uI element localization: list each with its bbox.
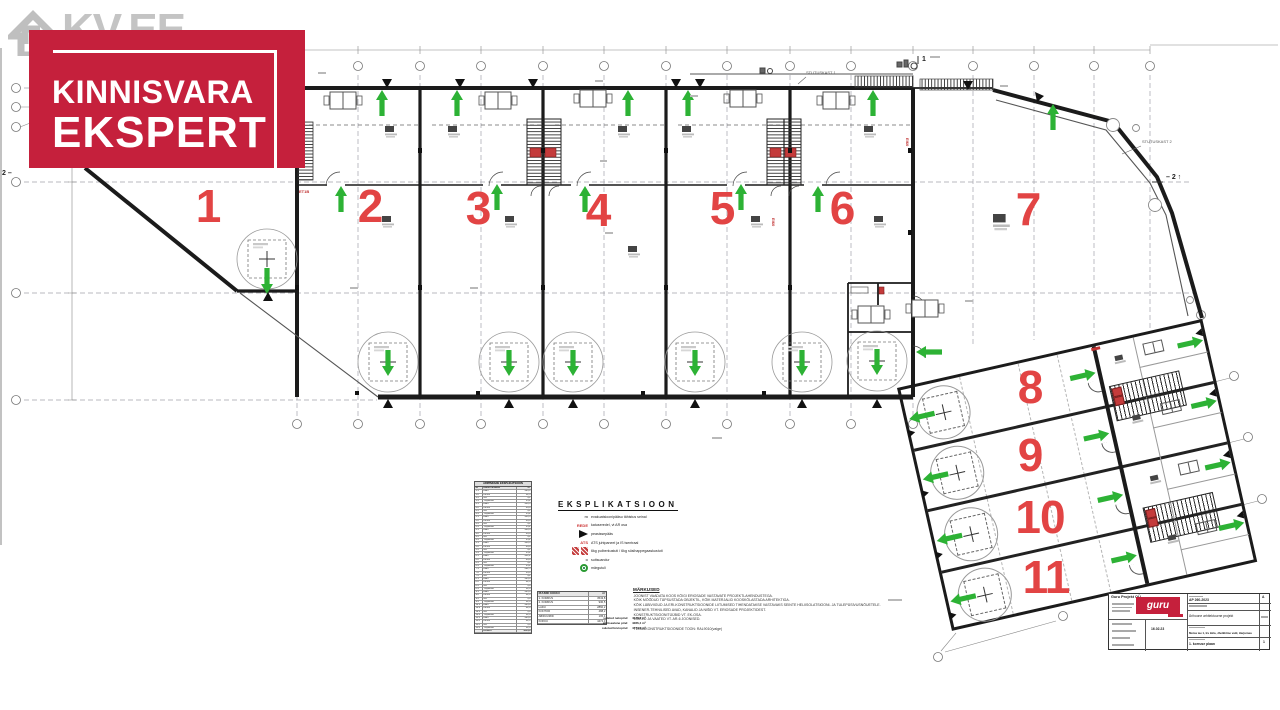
section-marker-left: 2 –: [2, 170, 12, 177]
work-number: AP 260-2023: [1189, 598, 1209, 602]
logo-line-1: KINNISVARA: [52, 74, 254, 111]
fire-rating-label: EI60: [771, 218, 776, 226]
legend: EKSPLIKATSIOON mevakuatsioonipääsu tähis…: [558, 494, 688, 572]
unit-number-10: 10: [1008, 494, 1072, 540]
unit-number-9: 9: [998, 432, 1062, 478]
page-number: 1: [1263, 640, 1265, 644]
legend-item: peasissepääs: [558, 530, 688, 538]
sheet-title: 1. korruse plaan: [1189, 642, 1215, 646]
entrance-triangle-icon: [579, 530, 588, 538]
legend-item: ATSATS juhtpaneel ja IS tsentraal: [558, 539, 688, 547]
revision: A: [1262, 595, 1264, 599]
legend-item: mevakuatsioonipääsu tähistus seinal: [558, 513, 688, 521]
unit-number-2: 2: [338, 183, 402, 229]
section-marker-right: – 2 ↑: [1166, 174, 1181, 181]
fire-extinguisher-icon: [572, 547, 579, 555]
fire-rating-label: EI60: [905, 138, 910, 146]
wall-joints: [798, 56, 1194, 304]
fire-rating-label: ET1B: [299, 189, 309, 194]
indicator-light-icon: [580, 564, 588, 572]
unit-number-1: 1: [176, 183, 240, 229]
unit-number-4: 4: [566, 187, 630, 233]
unit-number-8: 8: [998, 364, 1062, 410]
notes: MÄRKUSED JOONIST VAADATA KOOS KÕIGI ERIO…: [633, 587, 893, 632]
unit-number-11: 11: [1014, 554, 1078, 600]
duct-label-2: STUTUSKAST 2: [1142, 139, 1172, 144]
guru-logo: guru: [1136, 597, 1180, 614]
unit-number-3: 3: [446, 185, 510, 231]
staircases: [298, 76, 993, 358]
legend-item: osuitsuandur: [558, 556, 688, 564]
legend-item: märgutuli: [558, 565, 688, 573]
drawing-date: 16.02.23: [1151, 627, 1164, 631]
notes-title: MÄRKUSED: [633, 587, 893, 592]
room-explication-table: ÄRIPINDADE EKSPLIKATSIOON NrRuumi nimetu…: [474, 481, 532, 634]
legend-item: 6kg pulberkustuti / 6kg süsihappegaaskus…: [558, 547, 688, 555]
unit-number-5: 5: [690, 185, 754, 231]
section-marker-top: 1: [922, 56, 926, 63]
unit-number-7: 7: [996, 186, 1060, 232]
kinnisvara-ekspert-logo: KINNISVARA EKSPERT: [29, 30, 305, 168]
fire-extinguisher-icon: [581, 547, 588, 555]
legend-title: EKSPLIKATSIOON: [558, 500, 678, 511]
unit-number-6: 6: [810, 185, 874, 231]
floor-plan-screenshot: 1 2 3 4 5 6 7 8 9 10 11 STUTUSKAST 1 STU…: [0, 0, 1280, 710]
duct-label-1: STUTUSKAST 1: [806, 70, 836, 75]
logo-line-2: EKSPERT: [52, 108, 267, 158]
title-block: Guru Projekt OÜ guru 16.02.23 AP 260-202…: [1108, 593, 1270, 650]
legend-item: REDEkatuseredel, vt AR osa: [558, 522, 688, 530]
site-address: Metsa tee 1, Iru küla, Jõelähtme vald, H…: [1189, 631, 1252, 635]
project-title: Ärihoone arhitektuurne projekt: [1189, 614, 1233, 618]
